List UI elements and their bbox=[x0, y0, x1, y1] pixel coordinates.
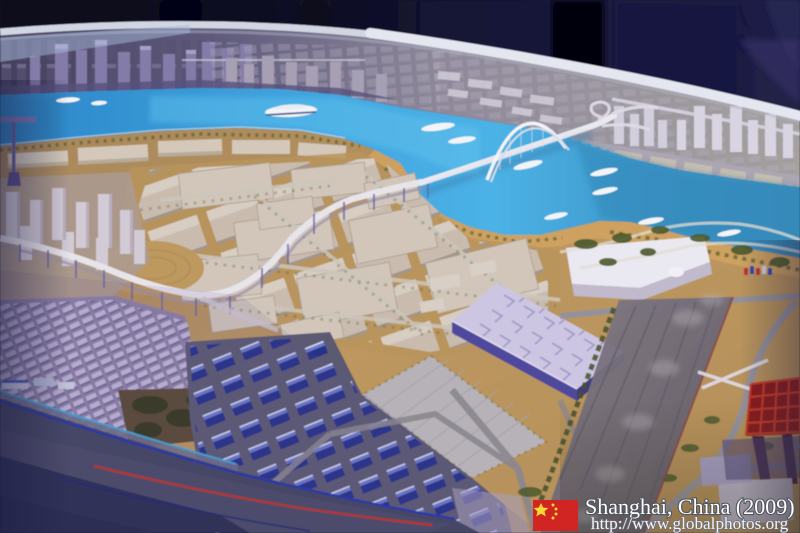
svg-text:http://www.globalphotos.org: http://www.globalphotos.org bbox=[591, 514, 789, 533]
